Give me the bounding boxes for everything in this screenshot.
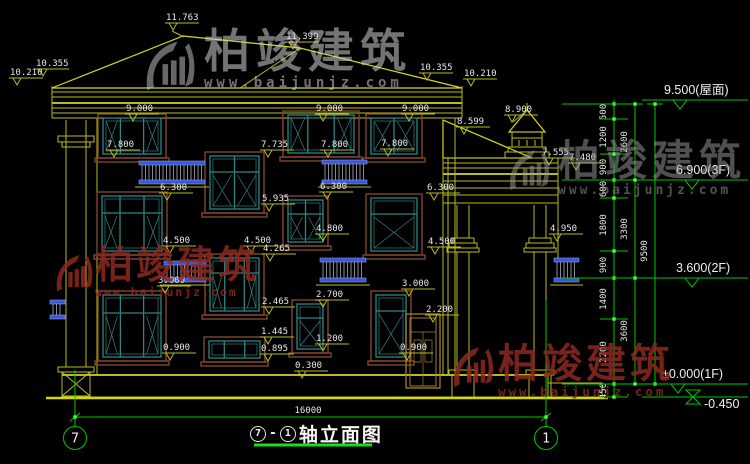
dimension-marker-triangle [265,204,273,211]
chain-node [612,317,615,320]
window [202,254,267,319]
window-sill [363,255,425,259]
elevation-mark-triangle [671,384,685,393]
dimension-label: 0.900 [400,343,427,353]
axis-bubble-1: 1 [535,427,558,450]
window-opening-mark [106,316,117,354]
window-opening-mark [147,316,158,354]
dimension-label: 4.500 [428,237,455,247]
dimension-label: 11.763 [166,13,199,23]
elevation-mark-triangle [685,180,699,189]
window-frame [371,198,417,251]
dimension-label: 6.300 [320,182,347,192]
door-panels [410,332,436,386]
window [94,192,170,259]
window-surround [98,291,166,361]
railing-top-rail [164,261,206,265]
window-opening-mark [238,175,257,206]
chain-dimension-label: 3600 [620,320,630,342]
chain-dimension-label: 500 [599,104,609,120]
dimension-label: 9.000 [126,104,153,114]
left-pilaster [58,120,94,396]
dimension-label: 7.800 [321,140,348,150]
chain-node [612,117,615,120]
railing-top-rail [320,258,366,262]
dimension-label: 6.300 [160,183,187,193]
porch-column-left [447,205,479,397]
chain-node [612,249,615,252]
title-separator: - [269,426,277,441]
dimension-marker-triangle [264,150,272,157]
window [363,194,425,259]
window-sill [201,362,268,366]
dimension-label: 11.399 [286,32,319,42]
chain-dimension-label: 900 [599,159,609,175]
window [202,152,267,217]
dimension-label: 1.445 [261,327,288,337]
chain-dimension-label: 3300 [620,218,630,240]
window-frame [103,295,161,357]
railing-top-rail [50,300,65,304]
chain-dimension-label: 9500 [640,240,650,262]
dimension-marker-triangle [13,78,21,85]
window-opening-mark [213,175,232,206]
dimension-label: 7.800 [107,140,134,150]
window-frame-inner [105,199,159,248]
dimension-label: 7.555 [542,148,569,158]
dimension-marker-triangle [430,193,438,200]
window-frame-inner [106,298,158,354]
window [363,114,425,162]
chain-node [633,178,636,181]
window [201,337,268,366]
railing-top-rail [322,160,367,164]
dimension-label: 9.000 [316,104,343,114]
balcony-railing [50,300,65,319]
dimension-marker-triangle [266,254,274,261]
dimension-marker-triangle [572,163,580,170]
dimension-label: 9.000 [402,104,429,114]
dimension-label: 0.900 [163,343,190,353]
dimension-marker-triangle [467,79,475,86]
dimension-marker-triangle [431,247,439,254]
balcony-railing [316,258,370,285]
plinth [62,375,602,397]
dimension-label: 4.950 [550,224,577,234]
dimension-label: 8.900 [505,105,532,115]
dimension-label: 7.480 [569,153,596,163]
chain-dimension-label: 1800 [599,214,609,236]
railing-bottom-rail [554,278,579,282]
window-frame-inner [374,201,414,248]
dimension-label: 3.000 [402,279,429,289]
elevation-mark-triangle [673,100,687,109]
chain-node [612,196,615,199]
window-opening-mark [213,276,222,308]
chain-node [612,395,615,398]
title-axis-from-bubble: 7 [250,426,266,442]
chain-dimension-label: 2200 [599,341,609,363]
window-opening-mark [247,276,256,308]
chain-node [612,152,615,155]
dimension-label: 4.265 [263,244,290,254]
dim-node [73,415,76,418]
elevation-mark-label: ±0.000(1F) [662,367,723,381]
window [95,114,169,162]
cad-drawing-sheet: 7 1 11.76311.39910.35510.21010.35510.210… [0,0,750,464]
axis-bubble-7-label: 7 [71,432,79,447]
window-opening-mark [147,216,159,248]
dimension-label: 16000 [294,406,321,416]
balcony-railing [550,258,583,285]
dimension-label: 6.300 [427,183,454,193]
window-sill [202,213,267,217]
window-opening-mark [105,216,117,248]
window-opening-mark [291,118,305,150]
window-sill [363,158,425,162]
chain-node [633,102,636,105]
dimension-label: 2.465 [262,297,289,307]
chain-dimension-label: 1200 [599,126,609,148]
window-frame [210,258,259,311]
chain-dimension-label: 2600 [620,131,630,153]
dimension-label: 10.355 [420,63,453,73]
dimension-label: 0.300 [295,361,322,371]
window-frame [102,196,162,251]
dimension-label: 2.200 [426,305,453,315]
window-opening-mark [374,217,414,248]
dimension-label: 4.500 [163,236,190,246]
elevation-mark-label: 3.600(2F) [676,261,730,275]
elevation-drawing-canvas: 7 1 11.76311.39910.35510.21010.35510.210… [0,0,750,464]
elevation-mark-triangle [685,278,699,287]
dim-node [544,415,547,418]
dimension-marker-triangle [169,23,177,30]
axis-bubble-1-label: 1 [542,432,550,447]
dimension-label: 10.210 [464,69,497,79]
window-opening-mark [147,121,158,151]
dimension-marker-triangle [247,246,255,253]
window-opening-mark [291,217,303,239]
window-sill [289,353,331,357]
window-sill [94,255,170,259]
dimension-label: 10.210 [10,68,43,78]
window-sill [368,361,414,365]
chain-dimension-label: 1400 [599,288,609,310]
dimension-label: 1.200 [316,334,343,344]
railing-bottom-rail [50,315,65,319]
chain-node [633,382,636,385]
dimension-label: 5.935 [262,194,289,204]
window-surround [98,114,166,158]
railing-top-rail [554,258,579,262]
railing-bottom-rail [320,278,366,282]
railing-top-rail [139,161,205,165]
chain-dimension-label: 600 [599,181,609,197]
window-sill [95,361,169,365]
dimension-label: 2.700 [316,290,343,300]
dimension-marker-triangle [265,307,273,314]
dimension-marker-triangle [166,353,174,360]
dimension-label: 3.000 [158,276,185,286]
dimension-marker-triangle [545,158,553,165]
chain-dimension-label: 900 [599,257,609,273]
dimension-marker-triangle [161,286,169,293]
dimension-label: 8.599 [457,117,484,127]
window-sill [202,315,267,319]
chain-node [633,276,636,279]
elevation-mark-label: -0.450 [704,397,739,411]
main-eave-cornice [52,86,462,118]
axis-bubble-7: 7 [64,427,87,450]
title-axis-to-bubble: 1 [280,426,296,442]
title-text: 轴立面图 [299,420,383,447]
chain-node [653,102,656,105]
elevation-mark-label: 6.900(3F) [676,163,730,177]
dimension-label: 7.800 [381,139,408,149]
dimension-marker-triangle [553,234,561,241]
window-surround [366,194,422,255]
main-hip-roof [52,36,462,88]
window [95,291,169,365]
drawing-title: 7 - 1 轴立面图 [250,420,383,447]
window-frame [209,341,260,358]
dimension-label: 7.735 [261,140,288,150]
dimension-label: 4.800 [316,224,343,234]
elevation-mark-label: 9.500(屋面) [664,83,729,97]
window [368,291,414,365]
window-frame-inner [212,344,257,355]
dimension-label: 0.895 [261,344,288,354]
